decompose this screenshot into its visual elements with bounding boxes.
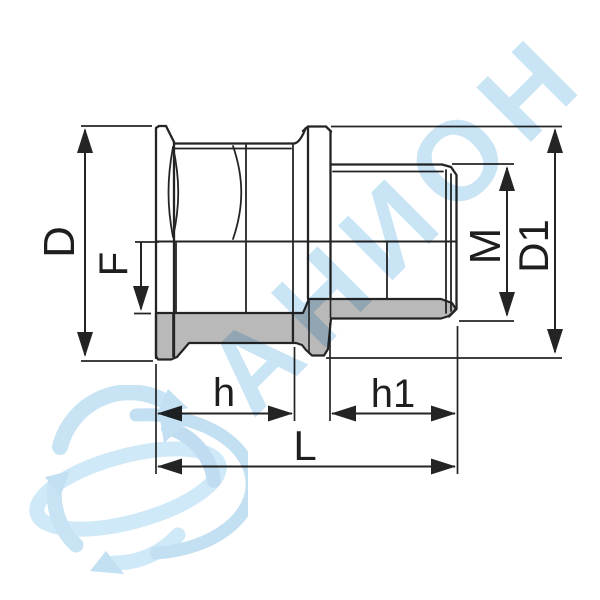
dim-label-f: F bbox=[92, 252, 136, 276]
shading-collar-and-male-thread bbox=[293, 299, 456, 356]
female-thread-arcs bbox=[169, 145, 294, 240]
dim-label-h1: h1 bbox=[371, 372, 416, 416]
diagram-canvas: D F M D1 h h1 L А bbox=[0, 0, 600, 600]
dim-label-d: D bbox=[35, 226, 84, 258]
fitting-shading bbox=[156, 299, 456, 360]
shading-female-body bbox=[156, 313, 293, 360]
dim-label-d1: D1 bbox=[510, 219, 557, 273]
dim-label-h: h bbox=[213, 371, 235, 415]
dim-label-l: L bbox=[293, 422, 316, 469]
dim-label-m: M bbox=[461, 228, 510, 265]
fitting-technical-drawing: D F M D1 h h1 L bbox=[0, 0, 600, 600]
